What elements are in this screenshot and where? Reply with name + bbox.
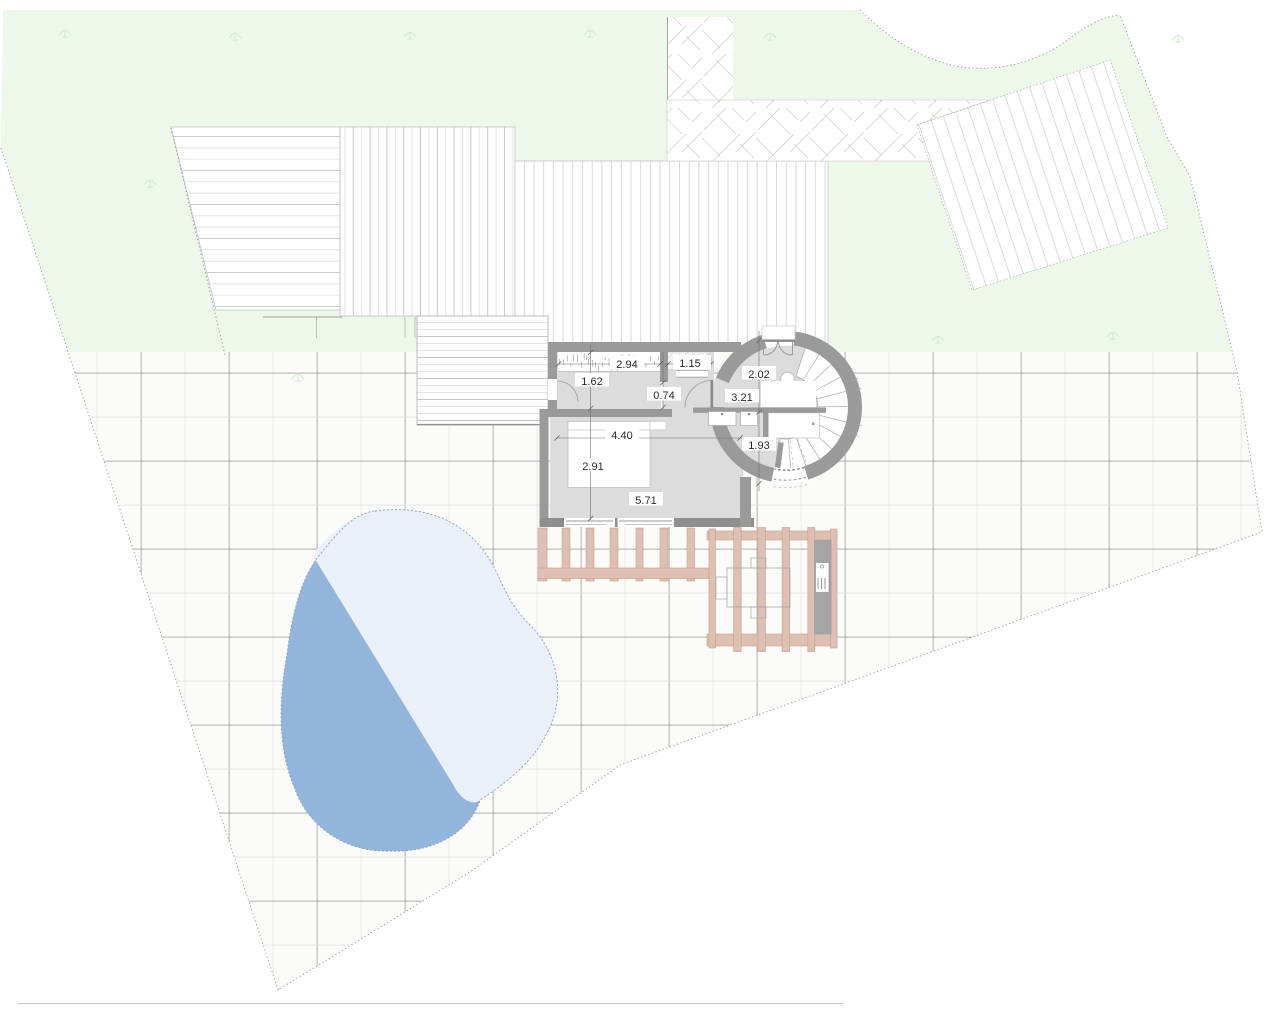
svg-text:2.91: 2.91 xyxy=(582,461,603,473)
svg-text:3.21: 3.21 xyxy=(731,392,752,404)
svg-text:0.74: 0.74 xyxy=(653,390,674,402)
svg-text:1.93: 1.93 xyxy=(748,440,769,452)
svg-text:1.15: 1.15 xyxy=(679,358,700,370)
svg-text:2.94: 2.94 xyxy=(616,359,637,371)
svg-text:5.71: 5.71 xyxy=(635,495,656,507)
svg-text:2.02: 2.02 xyxy=(748,369,769,381)
svg-text:1.62: 1.62 xyxy=(581,376,602,388)
svg-text:4.40: 4.40 xyxy=(611,430,632,442)
